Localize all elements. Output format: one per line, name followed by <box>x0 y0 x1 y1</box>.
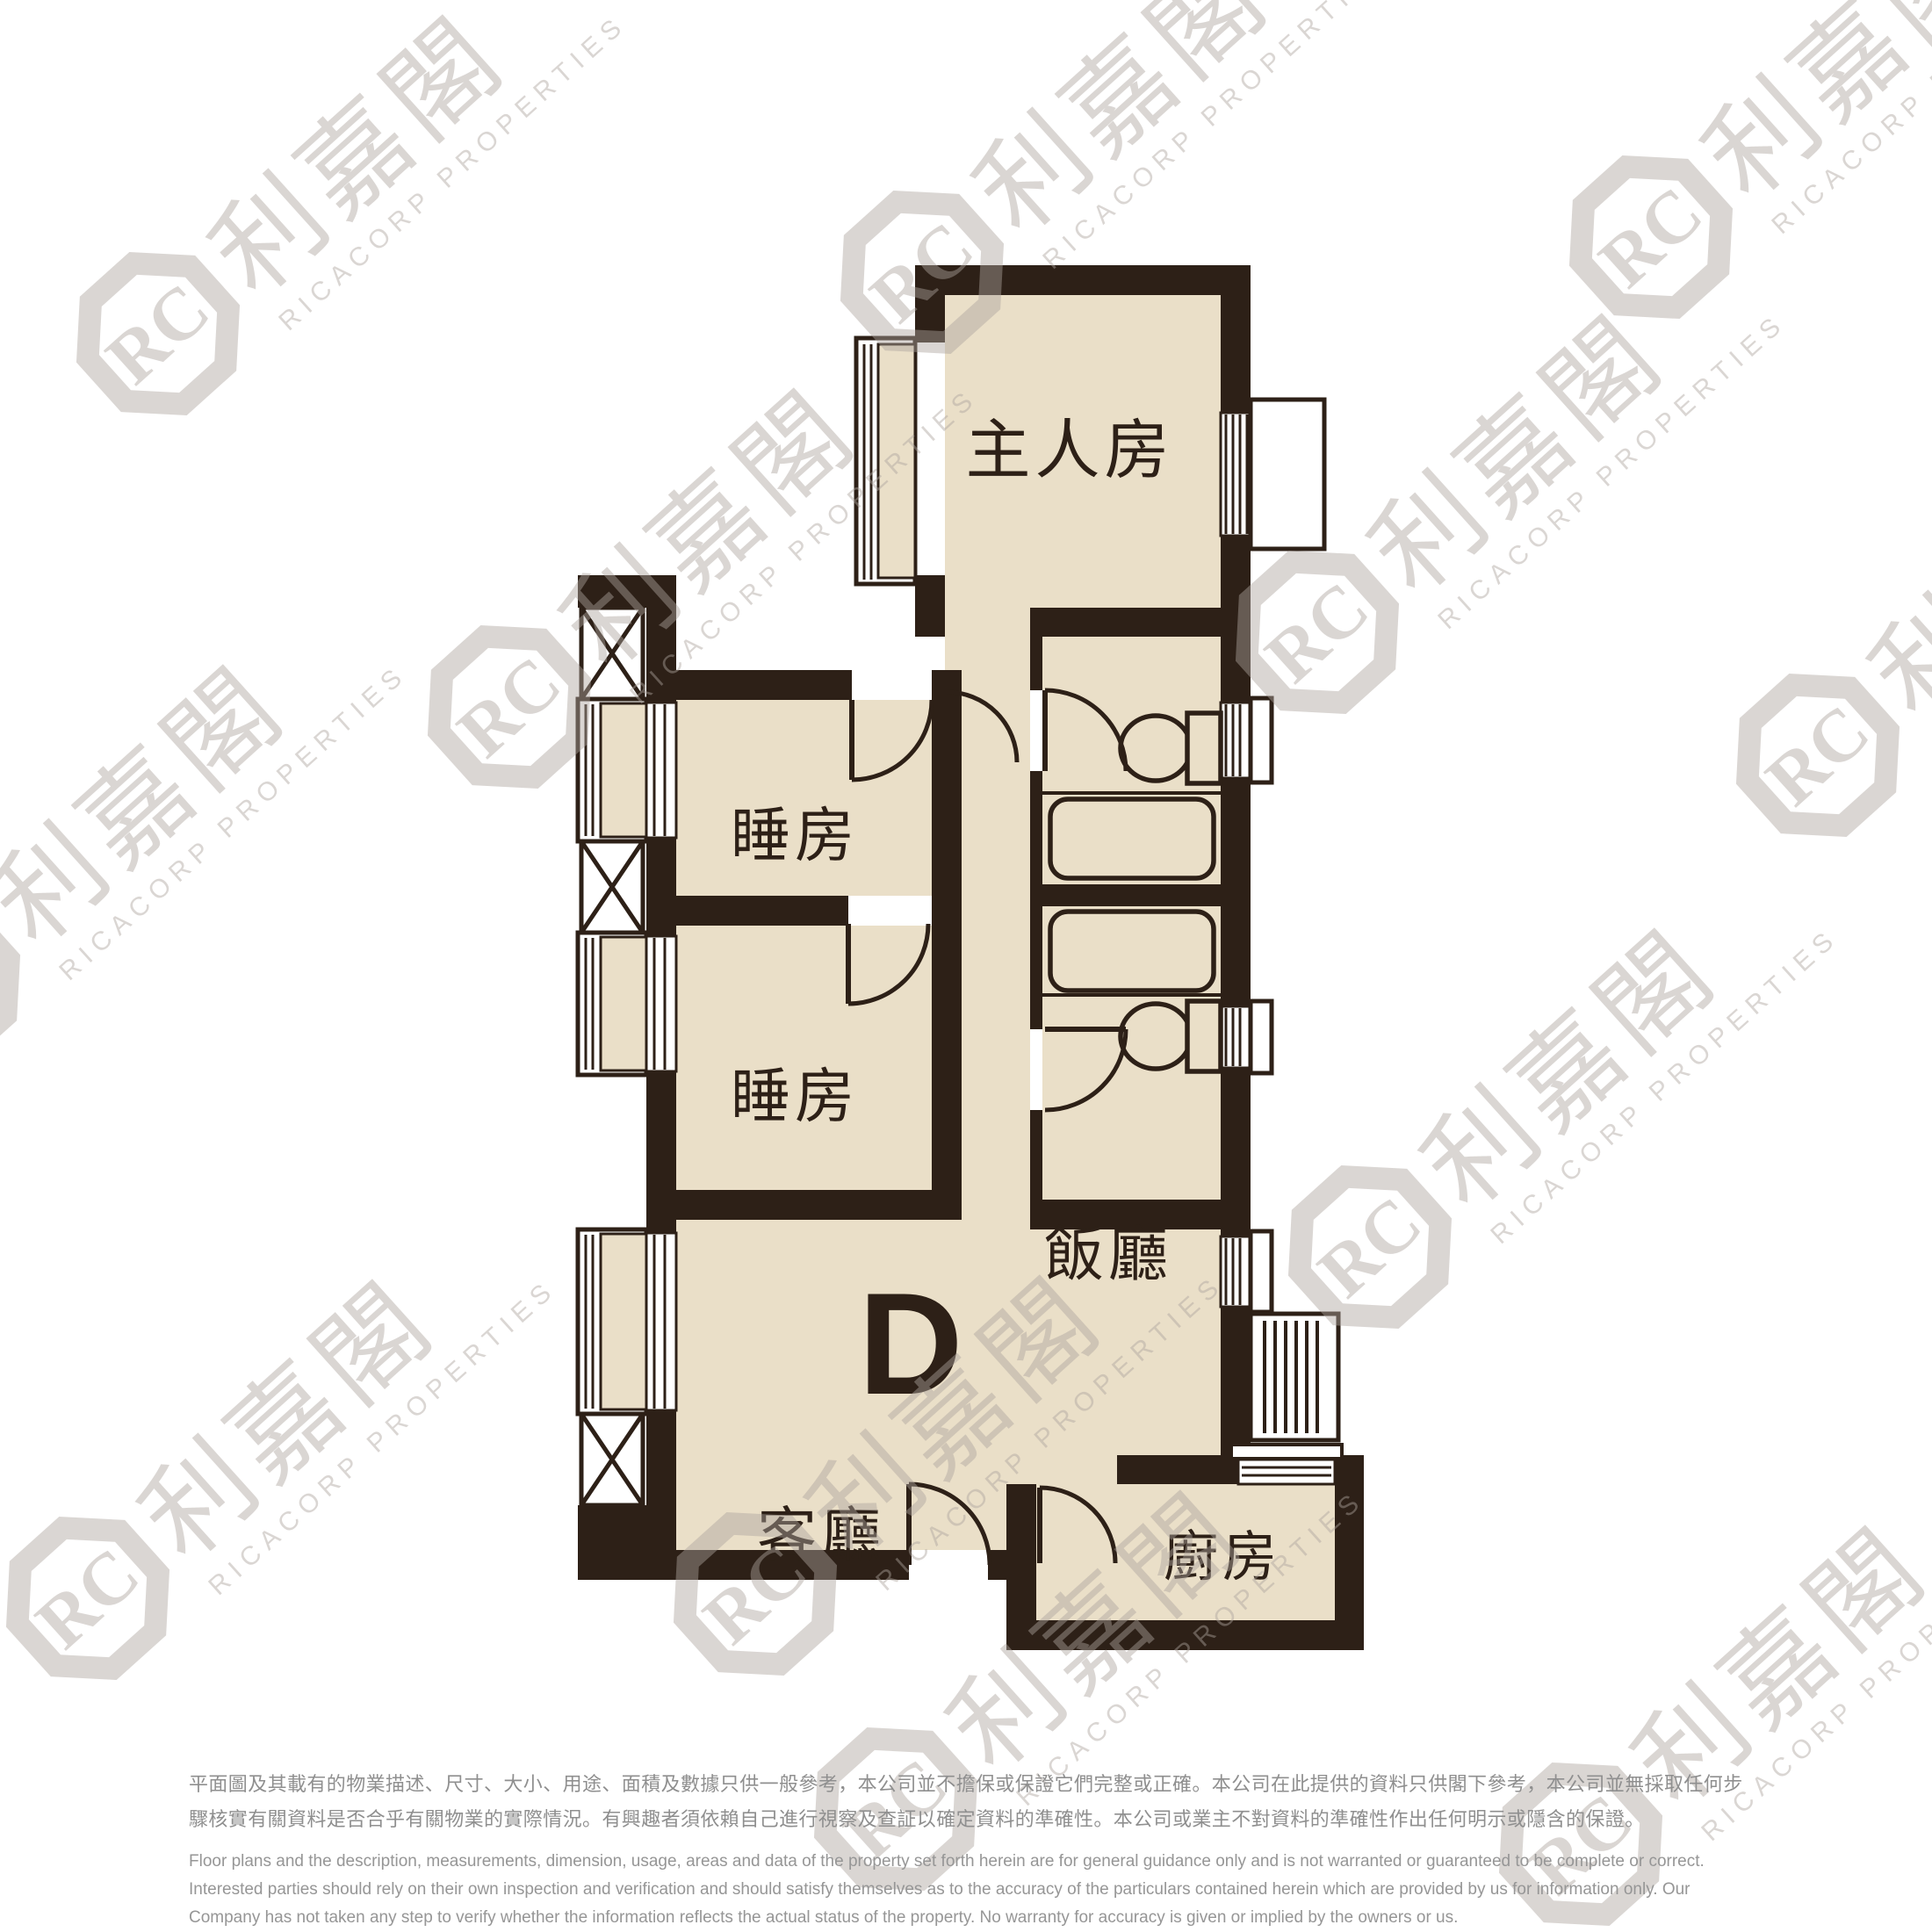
disclaimer-en-line: Floor plans and the description, measure… <box>189 1848 1770 1876</box>
disclaimer-en-line: Interested parties should rely on their … <box>189 1876 1770 1904</box>
toilet-cistern <box>1187 713 1221 783</box>
wall-segment <box>1221 265 1251 413</box>
wall-segment <box>646 896 848 926</box>
bay-window-interior <box>601 937 646 1071</box>
toilet-cistern <box>1187 1001 1221 1071</box>
wall-segment <box>1030 1110 1042 1200</box>
watermark: RC利嘉閣RICACORP PROPERTIES <box>1705 324 1932 877</box>
floorplan-page: 主人房 睡房 睡房 飯廳 D 客廳 廚房 RC利嘉閣RICACORP PROPE… <box>0 0 1932 1932</box>
floor-bedroom-2 <box>676 926 932 1190</box>
floor-corridor <box>962 608 1030 1220</box>
disclaimer-zh-line: 驟核實有關資料是否合乎有關物業的實際情況。有興趣者須依賴自己進行視察及查証以確定… <box>189 1802 1770 1837</box>
window-sill <box>1231 1445 1342 1459</box>
toilet-bowl <box>1121 1004 1191 1069</box>
ac-platform-master <box>1251 400 1324 549</box>
watermark: RC利嘉閣RICACORP PROPERTIES <box>1257 816 1844 1369</box>
watermark: RC利嘉閣RICACORP PROPERTIES <box>0 1167 562 1720</box>
window-opening <box>646 703 676 838</box>
wall-segment <box>1030 884 1221 906</box>
window-sill <box>1251 1231 1272 1312</box>
watermark: RC利嘉閣RICACORP PROPERTIES <box>45 0 632 456</box>
label-bedroom-2: 睡房 <box>731 1063 859 1130</box>
wall-segment <box>646 838 676 936</box>
floorplan-drawing: 主人房 睡房 睡房 飯廳 D 客廳 廚房 RC利嘉閣RICACORP PROPE… <box>0 0 1932 1932</box>
wall-segment <box>1030 608 1221 637</box>
label-master-bedroom: 主人房 <box>966 415 1174 487</box>
disclaimer-zh-line: 平面圖及其載有的物業描述、尺寸、大小、用途、面積及數據只供一般參考，本公司並不擔… <box>189 1767 1770 1802</box>
label-bedroom-1: 睡房 <box>731 803 859 869</box>
window-sill <box>1251 1001 1272 1073</box>
wall-segment <box>1030 637 1042 690</box>
toilet-bowl <box>1121 716 1191 781</box>
watermark-brand-chinese: 利嘉閣 <box>955 0 1293 255</box>
wall-segment <box>646 1071 676 1233</box>
disclaimer-en-line: Company has not taken any step to verify… <box>189 1904 1770 1932</box>
disclaimer-english: Floor plans and the description, measure… <box>189 1848 1770 1932</box>
bay-window-interior <box>601 1234 646 1409</box>
window-opening <box>646 1233 676 1410</box>
disclaimer-chinese: 平面圖及其載有的物業描述、尺寸、大小、用途、面積及數據只供一般參考，本公司並不擔… <box>189 1767 1770 1837</box>
bay-window-interior <box>601 703 646 837</box>
window-opening <box>646 936 676 1071</box>
disclaimer-block: 平面圖及其載有的物業描述、尺寸、大小、用途、面積及數據只供一般參考，本公司並不擔… <box>189 1767 1770 1932</box>
wall-segment <box>915 575 945 637</box>
wall-segment <box>1221 778 1251 1006</box>
wall-segment <box>1221 1307 1251 1455</box>
wall-segment <box>646 1190 962 1220</box>
window-opening <box>1238 1460 1335 1484</box>
window-sill <box>1251 698 1272 782</box>
watermark: RC利嘉閣RICACORP PROPERTIES <box>0 552 413 1106</box>
